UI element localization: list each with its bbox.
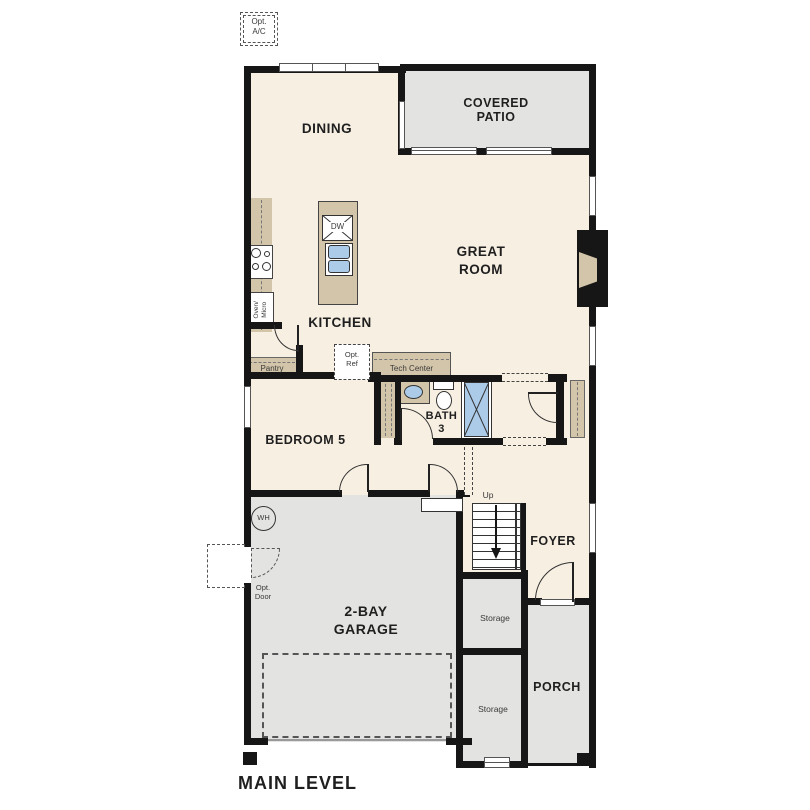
wall bbox=[368, 490, 430, 497]
window-line bbox=[485, 762, 509, 763]
covered-patio-line1: COVERED bbox=[436, 96, 556, 110]
stair-arrow-head bbox=[491, 548, 501, 559]
covered-patio-label: COVERED PATIO bbox=[436, 96, 556, 125]
stair-stringer-line bbox=[515, 504, 517, 569]
bath3-line1: BATH bbox=[425, 410, 458, 423]
wall bbox=[400, 64, 596, 71]
wall bbox=[589, 64, 596, 768]
cased-opening bbox=[502, 373, 548, 382]
great-room-label: GREAT ROOM bbox=[421, 243, 541, 278]
covered-patio-line2: PATIO bbox=[436, 110, 556, 124]
opt-door-label: Opt. Door bbox=[248, 583, 278, 601]
front-door-threshold bbox=[540, 599, 575, 606]
toilet-tank bbox=[433, 381, 454, 390]
dishwasher-label: DW bbox=[324, 222, 351, 232]
wall bbox=[456, 490, 463, 768]
porch-post bbox=[577, 753, 590, 765]
sink-basin bbox=[328, 245, 350, 259]
garage-step bbox=[421, 498, 463, 512]
pantry-label: Pantry bbox=[247, 364, 297, 374]
bath-sink-icon bbox=[404, 385, 423, 399]
garage-door-opening-line bbox=[268, 739, 446, 741]
burner-icon bbox=[264, 251, 270, 257]
wall bbox=[462, 572, 522, 579]
title-marker-square bbox=[243, 752, 257, 765]
bedroom-window bbox=[244, 386, 251, 428]
bath3-label: BATH 3 bbox=[425, 410, 458, 436]
wall bbox=[368, 375, 502, 382]
garage-door-zone bbox=[262, 653, 452, 738]
tech-center-dashed-line bbox=[374, 359, 449, 360]
burner-icon bbox=[252, 263, 259, 270]
great-room-line2: ROOM bbox=[421, 261, 541, 279]
plan-title: MAIN LEVEL bbox=[238, 772, 438, 795]
cased-opening bbox=[464, 447, 473, 495]
toilet-bowl bbox=[436, 391, 452, 410]
garage-line2: GARAGE bbox=[306, 620, 426, 638]
patio-slider-door bbox=[486, 147, 552, 155]
kitchen-label: KITCHEN bbox=[280, 314, 400, 332]
opt-door-zone bbox=[207, 544, 245, 588]
storage-lower-label: Storage bbox=[468, 704, 518, 714]
foyer-label: FOYER bbox=[523, 533, 583, 549]
opt-ref-line1: Opt. bbox=[334, 350, 370, 359]
storage-upper-label: Storage bbox=[470, 613, 520, 623]
oven-micro-line2: Micro bbox=[261, 301, 269, 318]
opt-ac-line2: A/C bbox=[240, 27, 278, 37]
porch-label: PORCH bbox=[527, 679, 587, 695]
oven-micro-line1: Oven/ bbox=[253, 301, 261, 318]
window-mullion bbox=[345, 63, 346, 72]
garage-label: 2-BAY GARAGE bbox=[306, 602, 426, 638]
garage-line1: 2-BAY bbox=[306, 602, 426, 620]
linen-dashed-line bbox=[385, 379, 386, 436]
wall bbox=[374, 372, 381, 445]
oven-micro-label: Oven/ Micro bbox=[253, 301, 269, 318]
wall bbox=[433, 438, 503, 445]
opt-ac-label: Opt. A/C bbox=[240, 17, 278, 36]
linen-closet-shelf bbox=[381, 377, 395, 438]
wall bbox=[575, 598, 591, 605]
pantry-shelf-dashed-line bbox=[249, 362, 295, 363]
foyer-window bbox=[589, 503, 596, 553]
wall bbox=[244, 738, 268, 745]
slider-line bbox=[412, 150, 476, 151]
opt-ref-line2: Ref bbox=[334, 359, 370, 368]
opt-ref-label: Opt. Ref bbox=[334, 350, 370, 368]
dining-window bbox=[279, 63, 379, 72]
floor-plan: Oven/ Micro DW WH bbox=[0, 0, 810, 810]
cased-opening bbox=[503, 437, 546, 446]
coat-closet-dashed-line bbox=[577, 382, 578, 436]
bath3-line2: 3 bbox=[425, 423, 458, 436]
linen-dashed-line-2 bbox=[391, 379, 392, 436]
up-label: Up bbox=[474, 490, 502, 500]
burner-icon bbox=[262, 262, 271, 271]
tech-center-label: Tech Center bbox=[374, 364, 449, 374]
great-room-window bbox=[589, 326, 596, 366]
patio-slider-door bbox=[411, 147, 477, 155]
wall bbox=[244, 490, 342, 497]
water-heater-label: WH bbox=[251, 513, 276, 522]
opt-door-line2: Door bbox=[248, 592, 278, 601]
bedroom5-label: BEDROOM 5 bbox=[243, 432, 368, 448]
slider-line bbox=[487, 150, 551, 151]
wall bbox=[244, 495, 251, 745]
opt-door-opening bbox=[244, 547, 251, 583]
great-room-line1: GREAT bbox=[421, 243, 541, 261]
bedroom-door-leaf bbox=[367, 464, 369, 492]
stair-arrow-line bbox=[495, 505, 497, 550]
wall bbox=[556, 382, 564, 440]
dining-label: DINING bbox=[267, 120, 387, 138]
wall bbox=[521, 570, 528, 768]
wall bbox=[546, 438, 567, 445]
patio-side-window bbox=[399, 101, 405, 149]
window-mullion bbox=[312, 63, 313, 72]
wall bbox=[548, 374, 567, 382]
sink-basin bbox=[328, 260, 350, 273]
shower-icon bbox=[464, 382, 489, 437]
opt-door-line1: Opt. bbox=[248, 583, 278, 592]
opt-ac-line1: Opt. bbox=[240, 17, 278, 27]
burner-icon bbox=[251, 248, 261, 258]
wall bbox=[462, 648, 522, 655]
great-room-window bbox=[589, 176, 596, 216]
